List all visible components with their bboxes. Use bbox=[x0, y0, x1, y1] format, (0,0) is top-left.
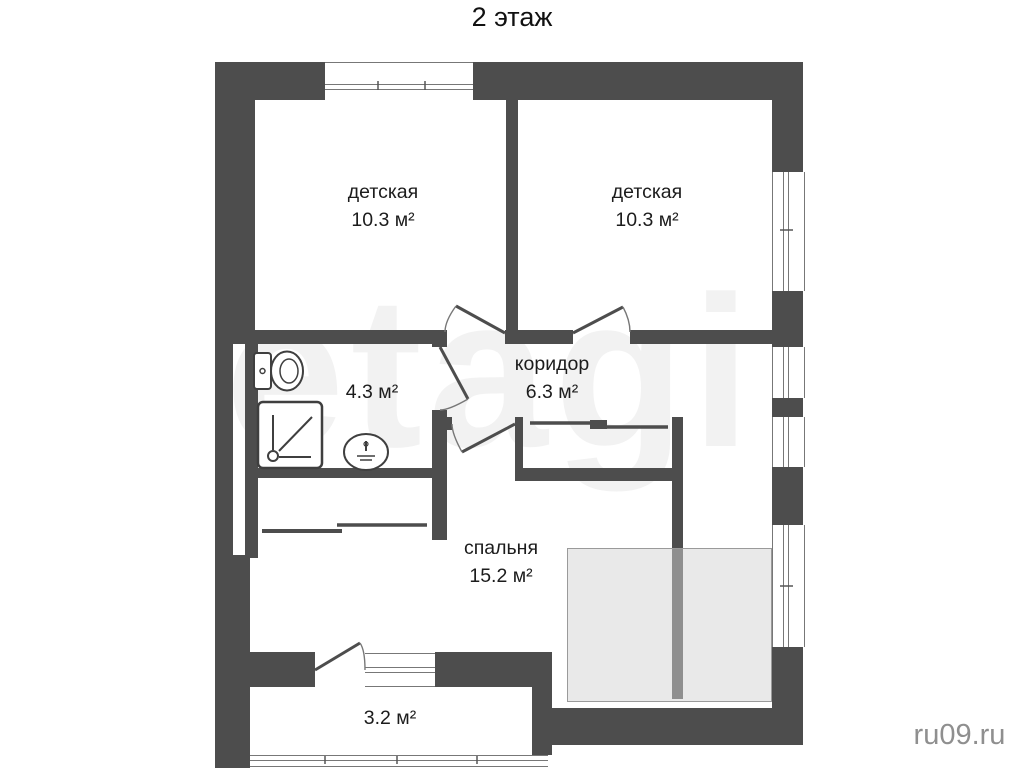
wall-right-seg3 bbox=[772, 398, 803, 417]
window-right-4 bbox=[772, 525, 805, 647]
room-label-nursery-left: детская 10.3 м² bbox=[313, 178, 453, 234]
room-area: 10.3 м² bbox=[313, 206, 453, 234]
room-area: 10.3 м² bbox=[577, 206, 717, 234]
window-top bbox=[325, 62, 473, 101]
terrace-wall-divider bbox=[672, 549, 683, 699]
wall-hall-top-left bbox=[233, 330, 445, 344]
door-balcony bbox=[315, 643, 365, 670]
wall-right-seg5 bbox=[772, 647, 803, 745]
wall-between-nurseries bbox=[506, 97, 518, 333]
room-name: спальня bbox=[431, 534, 571, 562]
wall-bath-bottom bbox=[258, 468, 447, 478]
wall-right-seg1 bbox=[772, 100, 803, 172]
wall-wardrobe-bottom bbox=[515, 468, 683, 481]
room-label-bedroom: спальня 15.2 м² bbox=[431, 534, 571, 590]
terrace-area bbox=[567, 548, 772, 702]
room-area: 4.3 м² bbox=[332, 378, 412, 406]
wall-right-seg2 bbox=[772, 291, 803, 347]
wall-balcony-top-right bbox=[435, 652, 552, 687]
wall-right-seg4 bbox=[772, 467, 803, 525]
floor-plan: etagi bbox=[0, 0, 1024, 768]
room-name: детская bbox=[577, 178, 717, 206]
window-right-1 bbox=[772, 172, 805, 291]
window-right-3 bbox=[772, 417, 805, 467]
window-right-2 bbox=[772, 347, 805, 398]
wall-hall-top-right bbox=[630, 330, 772, 344]
window-balcony-front bbox=[250, 755, 548, 767]
wall-left-upper bbox=[215, 62, 255, 333]
wall-balcony-right bbox=[532, 687, 552, 755]
room-area: 6.3 м² bbox=[482, 378, 622, 406]
room-label-bathroom: 4.3 м² bbox=[332, 378, 412, 406]
site-watermark: ru09.ru bbox=[897, 719, 1022, 752]
room-area: 3.2 м² bbox=[350, 704, 430, 732]
wall-left-inner-mid bbox=[245, 330, 258, 558]
room-label-nursery-right: детская 10.3 м² bbox=[577, 178, 717, 234]
wall-balcony-top-left bbox=[250, 652, 315, 687]
wall-bottom bbox=[552, 708, 803, 745]
wall-top-right bbox=[473, 62, 803, 100]
wall-left-outer-mid bbox=[215, 330, 233, 558]
wardrobe-bedroom-doors bbox=[262, 525, 427, 531]
room-label-balcony: 3.2 м² bbox=[350, 704, 430, 732]
wall-left-lower bbox=[215, 555, 250, 768]
wall-hall-top-mid bbox=[505, 330, 573, 344]
wall-wardrobe-right bbox=[672, 417, 683, 548]
window-balcony-door-side bbox=[365, 653, 435, 687]
wall-bath-right-stub bbox=[432, 330, 447, 347]
page-title: 2 этаж bbox=[0, 2, 1024, 33]
room-area: 15.2 м² bbox=[431, 562, 571, 590]
room-label-corridor: коридор 6.3 м² bbox=[482, 350, 622, 406]
wall-corridor-bottom-stub bbox=[437, 417, 452, 430]
room-name: детская bbox=[313, 178, 453, 206]
room-name: коридор bbox=[482, 350, 622, 378]
